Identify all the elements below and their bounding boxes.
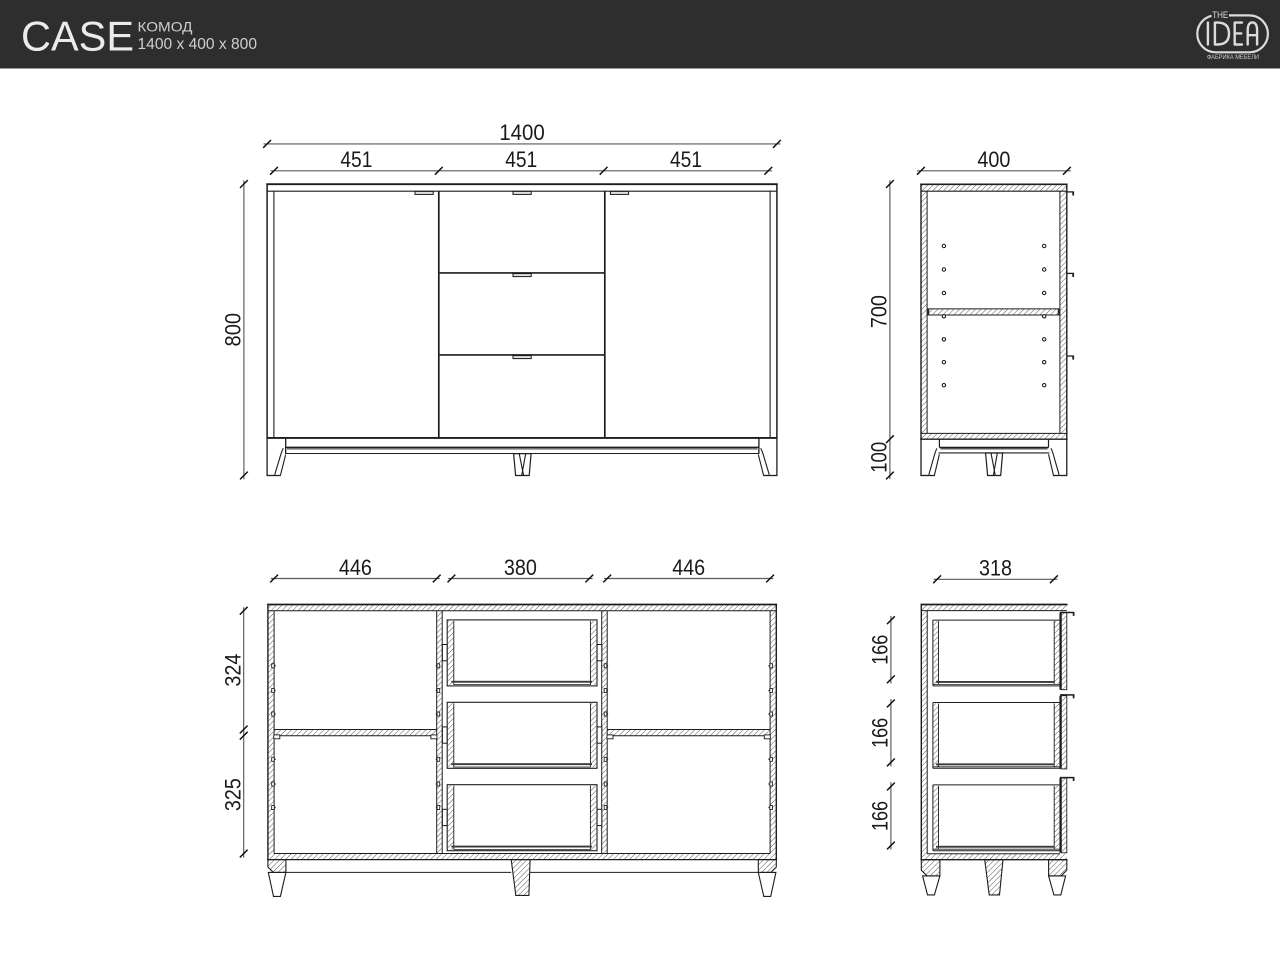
svg-text:446: 446 [339, 555, 372, 580]
svg-text:451: 451 [505, 147, 537, 172]
svg-text:166: 166 [868, 801, 893, 831]
svg-text:318: 318 [979, 556, 1012, 581]
svg-text:324: 324 [221, 654, 246, 687]
svg-text:100: 100 [867, 442, 892, 473]
svg-text:КОМОД: КОМОД [138, 18, 194, 34]
svg-text:1400: 1400 [499, 120, 545, 145]
svg-text:446: 446 [672, 555, 705, 580]
svg-text:166: 166 [868, 635, 893, 665]
svg-text:800: 800 [221, 313, 246, 347]
svg-text:1400 x 400 x 800: 1400 x 400 x 800 [138, 36, 258, 53]
svg-text:700: 700 [867, 295, 892, 328]
svg-text:CASE: CASE [21, 13, 134, 60]
svg-text:ФАБРИКА МЕБЕЛИ: ФАБРИКА МЕБЕЛИ [1207, 54, 1259, 61]
svg-text:451: 451 [670, 147, 702, 172]
svg-text:451: 451 [340, 147, 372, 172]
svg-text:166: 166 [868, 718, 893, 748]
svg-text:380: 380 [504, 555, 537, 580]
svg-text:325: 325 [221, 778, 246, 811]
svg-text:400: 400 [977, 147, 1010, 172]
svg-text:THE: THE [1212, 10, 1228, 20]
